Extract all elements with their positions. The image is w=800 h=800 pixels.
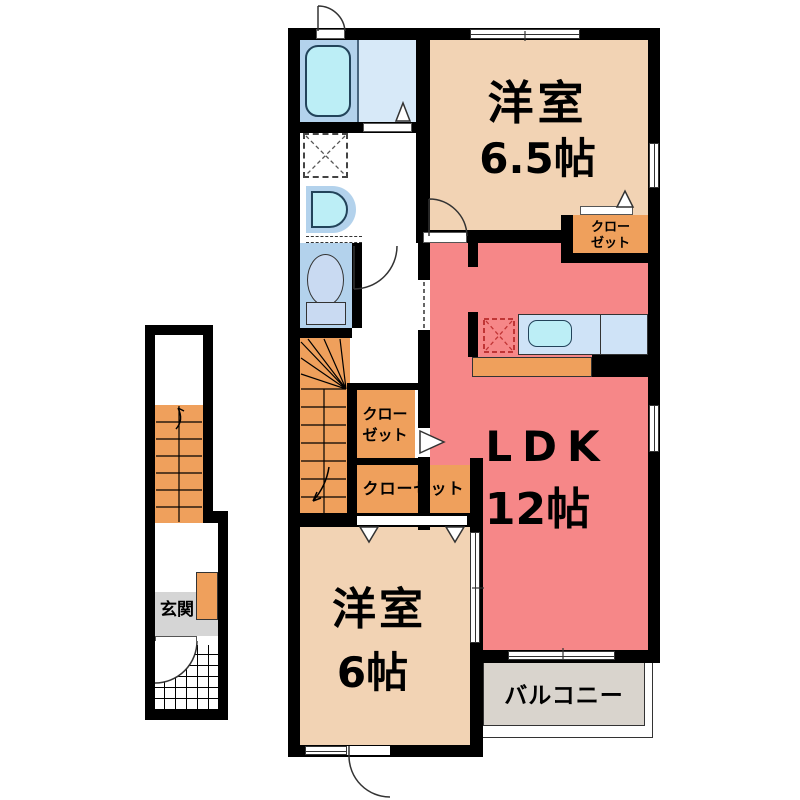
kitchen-wall-block: [592, 355, 648, 377]
label-closet-hall-line2: ゼット: [355, 425, 415, 446]
wall-toilet-bottom: [300, 328, 352, 338]
label-closet-tr: クロー ゼット: [573, 220, 648, 251]
door-strip-entry-top: [316, 29, 345, 39]
window-6-bottom: [305, 746, 347, 755]
label-ldk-name: LDK: [440, 426, 655, 468]
label-closet-hall-line1: クロー: [355, 404, 415, 425]
window-balcony-slider: [508, 651, 615, 660]
window-top-65: [470, 29, 580, 39]
kitchen-sink-icon: [528, 320, 572, 347]
door-strip-65: [423, 232, 467, 243]
entrance-porch-tiles: [153, 645, 218, 710]
kitchen-stub-lower: [468, 312, 478, 357]
bathtub: [305, 45, 351, 117]
wall-1f-right-lower: [218, 511, 228, 720]
stairs-1f: [155, 405, 203, 523]
room-western-6: [300, 527, 470, 745]
kitchen-counter-divider: [600, 314, 601, 355]
wall-closet-tr-left: [561, 215, 573, 253]
kitchen-low-counter: [472, 357, 592, 377]
toilet-tank-icon: [306, 302, 346, 325]
wall-65-left: [416, 28, 430, 243]
label-balcony: バルコニー: [483, 685, 645, 708]
slider-closet-tr: [580, 206, 633, 215]
window-right-65: [649, 143, 659, 188]
opening-ldk-dashed: [418, 280, 430, 330]
opening-ldk-door: [418, 428, 430, 457]
label-closet-tr-line2: ゼット: [573, 236, 648, 252]
wall-right: [648, 28, 660, 663]
wall-toilet-right: [352, 243, 362, 328]
label-room65-name: 洋室: [430, 80, 645, 126]
wall-1f-left: [145, 325, 155, 720]
wall-closet-tr-bottom: [561, 253, 648, 263]
kitchen-stub-upper: [468, 242, 478, 267]
washing-machine-space: [303, 133, 348, 178]
stairs-2f: [300, 338, 350, 515]
wall-closet-hall-top: [347, 383, 430, 390]
label-room6-name: 洋室: [300, 588, 458, 632]
wall-1f-bottom: [145, 710, 228, 720]
wall-stairs-right: [347, 383, 357, 515]
door-strip-washroom: [363, 123, 412, 132]
label-closet-wide: クローゼット: [357, 481, 470, 497]
dressing-area: [357, 40, 416, 122]
door-strip-entrance: [155, 636, 197, 645]
label-entrance: 玄関: [153, 602, 201, 619]
threshold-dashed: [306, 236, 362, 243]
label-room6-size: 6帖: [300, 652, 445, 694]
wall-1f-right-upper: [203, 325, 213, 521]
wall-closet-hall-bottom: [347, 458, 430, 465]
wall-left: [288, 28, 300, 757]
label-closet-tr-line1: クロー: [573, 220, 648, 236]
washbasin-icon: [311, 191, 348, 228]
label-room65-size: 6.5帖: [430, 138, 645, 180]
door-strip-6-bottom: [347, 746, 390, 755]
floorplan-canvas: 洋室 6.5帖 クロー ゼット LDK 12帖 クロー ゼット クローゼット 洋…: [0, 0, 800, 800]
slider-6-ldk: [470, 532, 480, 643]
label-closet-hall: クロー ゼット: [355, 404, 415, 446]
toilet-bowl-icon: [307, 254, 344, 306]
